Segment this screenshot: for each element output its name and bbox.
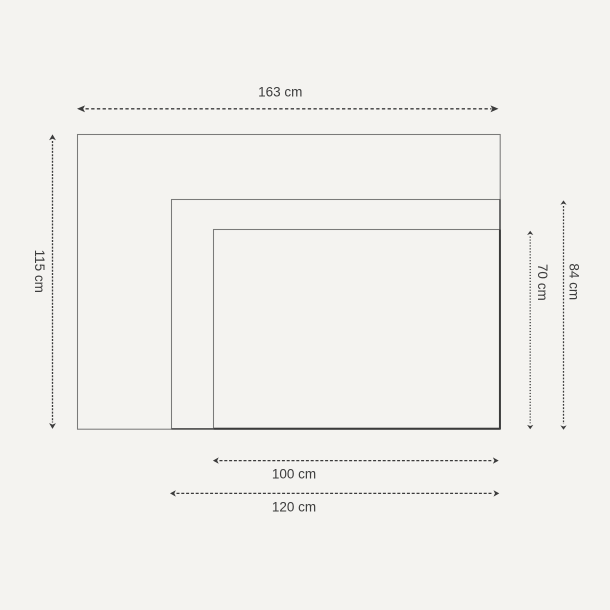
svg-text:115 cm: 115 cm (32, 250, 47, 293)
svg-text:100 cm: 100 cm (272, 467, 316, 482)
svg-text:120 cm: 120 cm (272, 499, 316, 514)
svg-text:84 cm: 84 cm (566, 263, 581, 300)
svg-text:163 cm: 163 cm (258, 84, 302, 99)
svg-text:70 cm: 70 cm (535, 264, 550, 301)
